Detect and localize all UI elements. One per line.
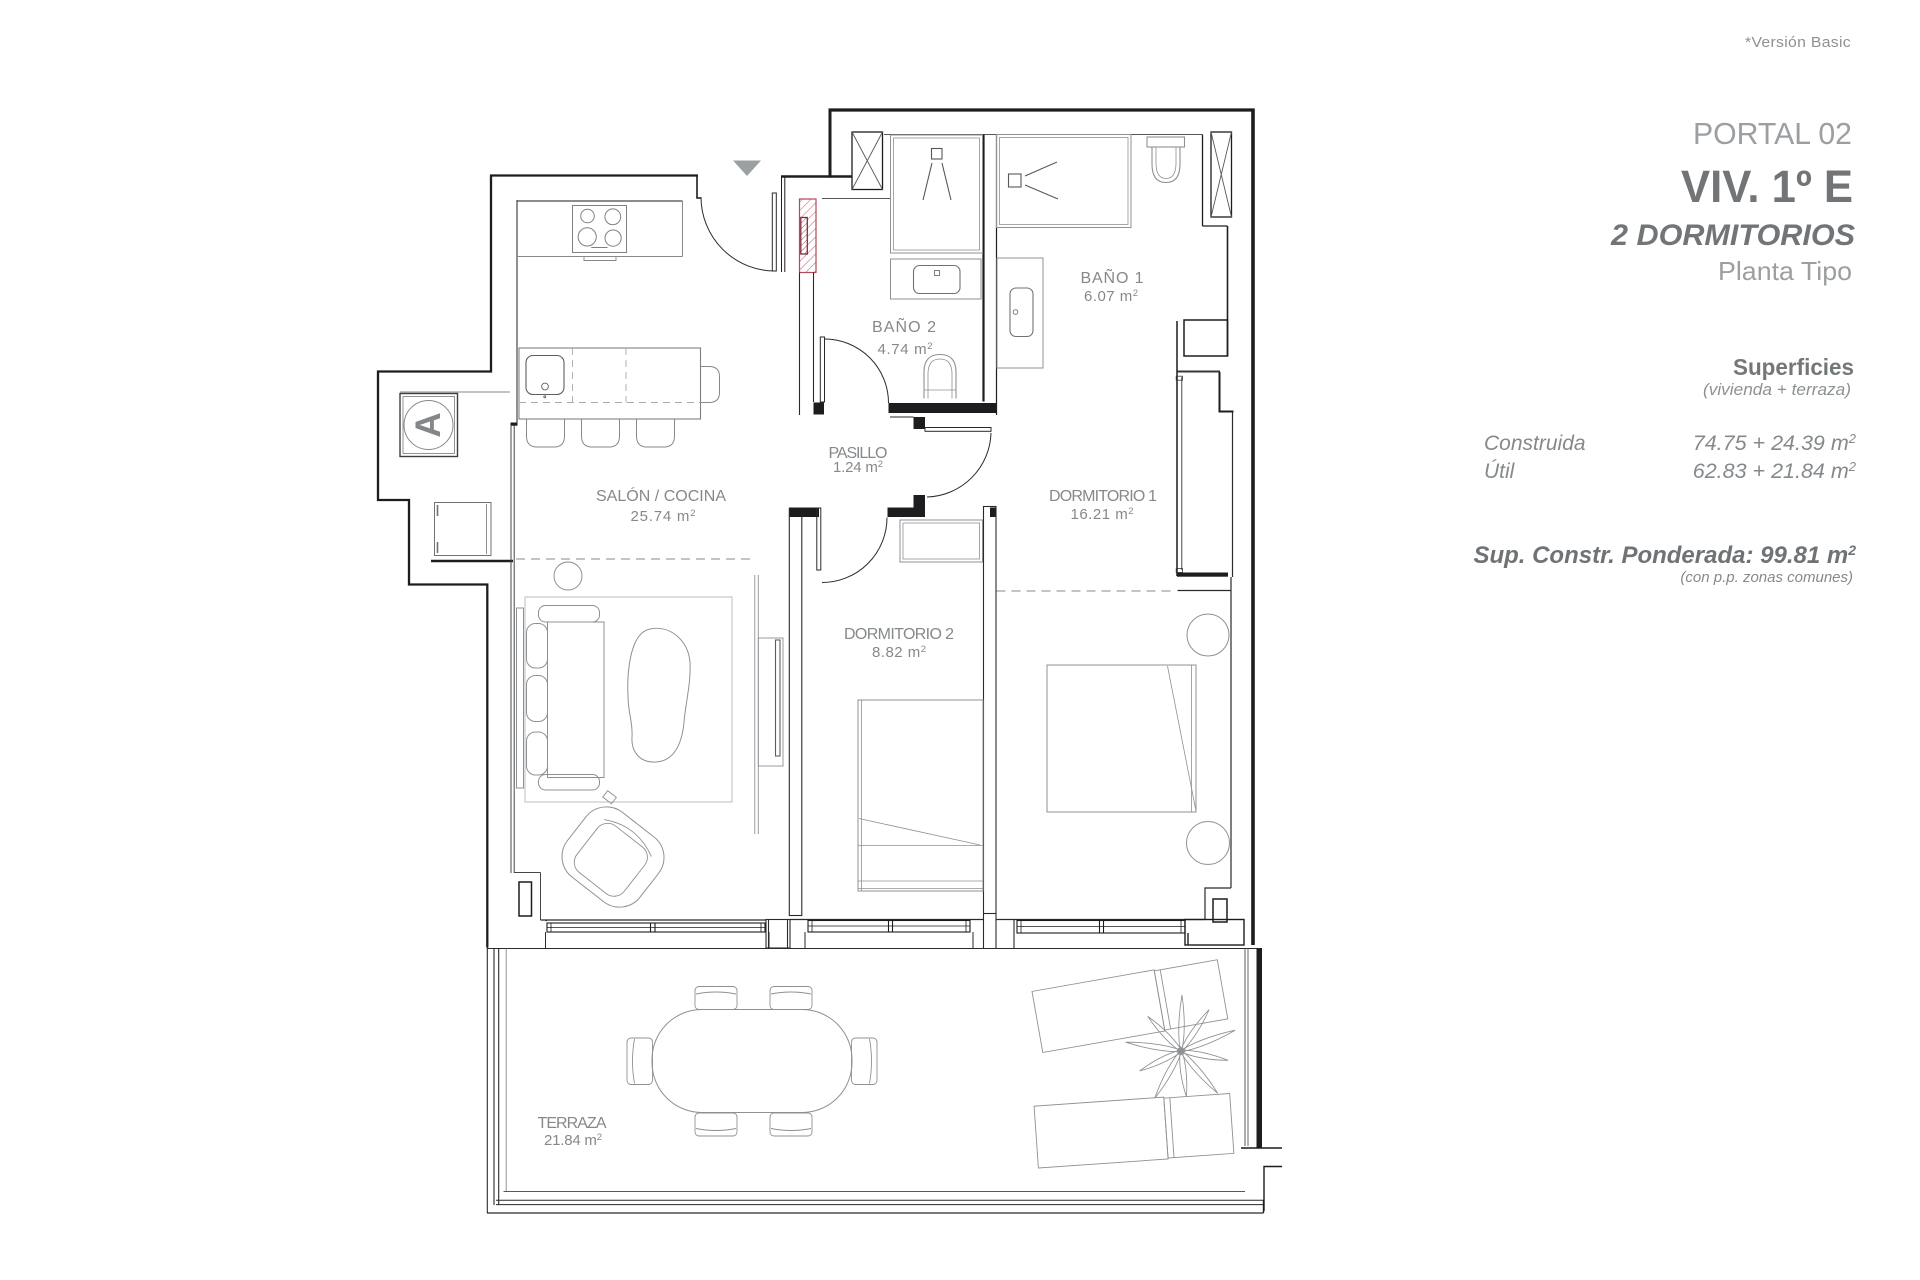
svg-text:DORMITORIO 1: DORMITORIO 1: [1049, 488, 1157, 505]
svg-text:Planta Tipo: Planta Tipo: [1718, 256, 1852, 286]
svg-text:SALÓN / COCINA: SALÓN / COCINA: [596, 486, 726, 505]
svg-text:BAÑO 1: BAÑO 1: [1081, 267, 1144, 287]
svg-text:A: A: [409, 412, 448, 437]
svg-text:PORTAL 02: PORTAL 02: [1693, 116, 1852, 151]
svg-text:Útil: Útil: [1484, 460, 1516, 483]
svg-text:62.83 + 21.84 m2: 62.83 + 21.84 m2: [1693, 459, 1857, 483]
svg-text:TERRAZA: TERRAZA: [538, 1115, 607, 1132]
svg-text:4.74 m2: 4.74 m2: [878, 341, 933, 358]
svg-text:74.75 + 24.39 m2: 74.75 + 24.39 m2: [1693, 431, 1857, 455]
svg-text:1.24 m2: 1.24 m2: [833, 459, 883, 476]
svg-text:2 DORMITORIOS: 2 DORMITORIOS: [1610, 219, 1855, 252]
svg-text:VIV. 1º E: VIV. 1º E: [1681, 161, 1853, 212]
svg-text:(vivienda + terraza): (vivienda + terraza): [1703, 381, 1851, 399]
svg-text:8.82 m2: 8.82 m2: [872, 644, 926, 661]
svg-text:(con p.p. zonas comunes): (con p.p. zonas comunes): [1680, 569, 1853, 586]
svg-text:Superficies: Superficies: [1733, 354, 1854, 380]
svg-text:21.84 m2: 21.84 m2: [544, 1132, 602, 1149]
svg-text:25.74 m2: 25.74 m2: [631, 508, 696, 525]
svg-text:*Versión Basic: *Versión Basic: [1745, 34, 1851, 51]
svg-text:DORMITORIO 2: DORMITORIO 2: [844, 626, 954, 643]
svg-text:16.21 m2: 16.21 m2: [1071, 506, 1134, 523]
svg-text:Sup. Constr. Ponderada: 99.81: Sup. Constr. Ponderada: 99.81 m2: [1473, 542, 1856, 569]
svg-text:Construida: Construida: [1484, 432, 1586, 455]
svg-text:BAÑO 2: BAÑO 2: [872, 316, 936, 336]
svg-text:6.07 m2: 6.07 m2: [1084, 288, 1138, 305]
